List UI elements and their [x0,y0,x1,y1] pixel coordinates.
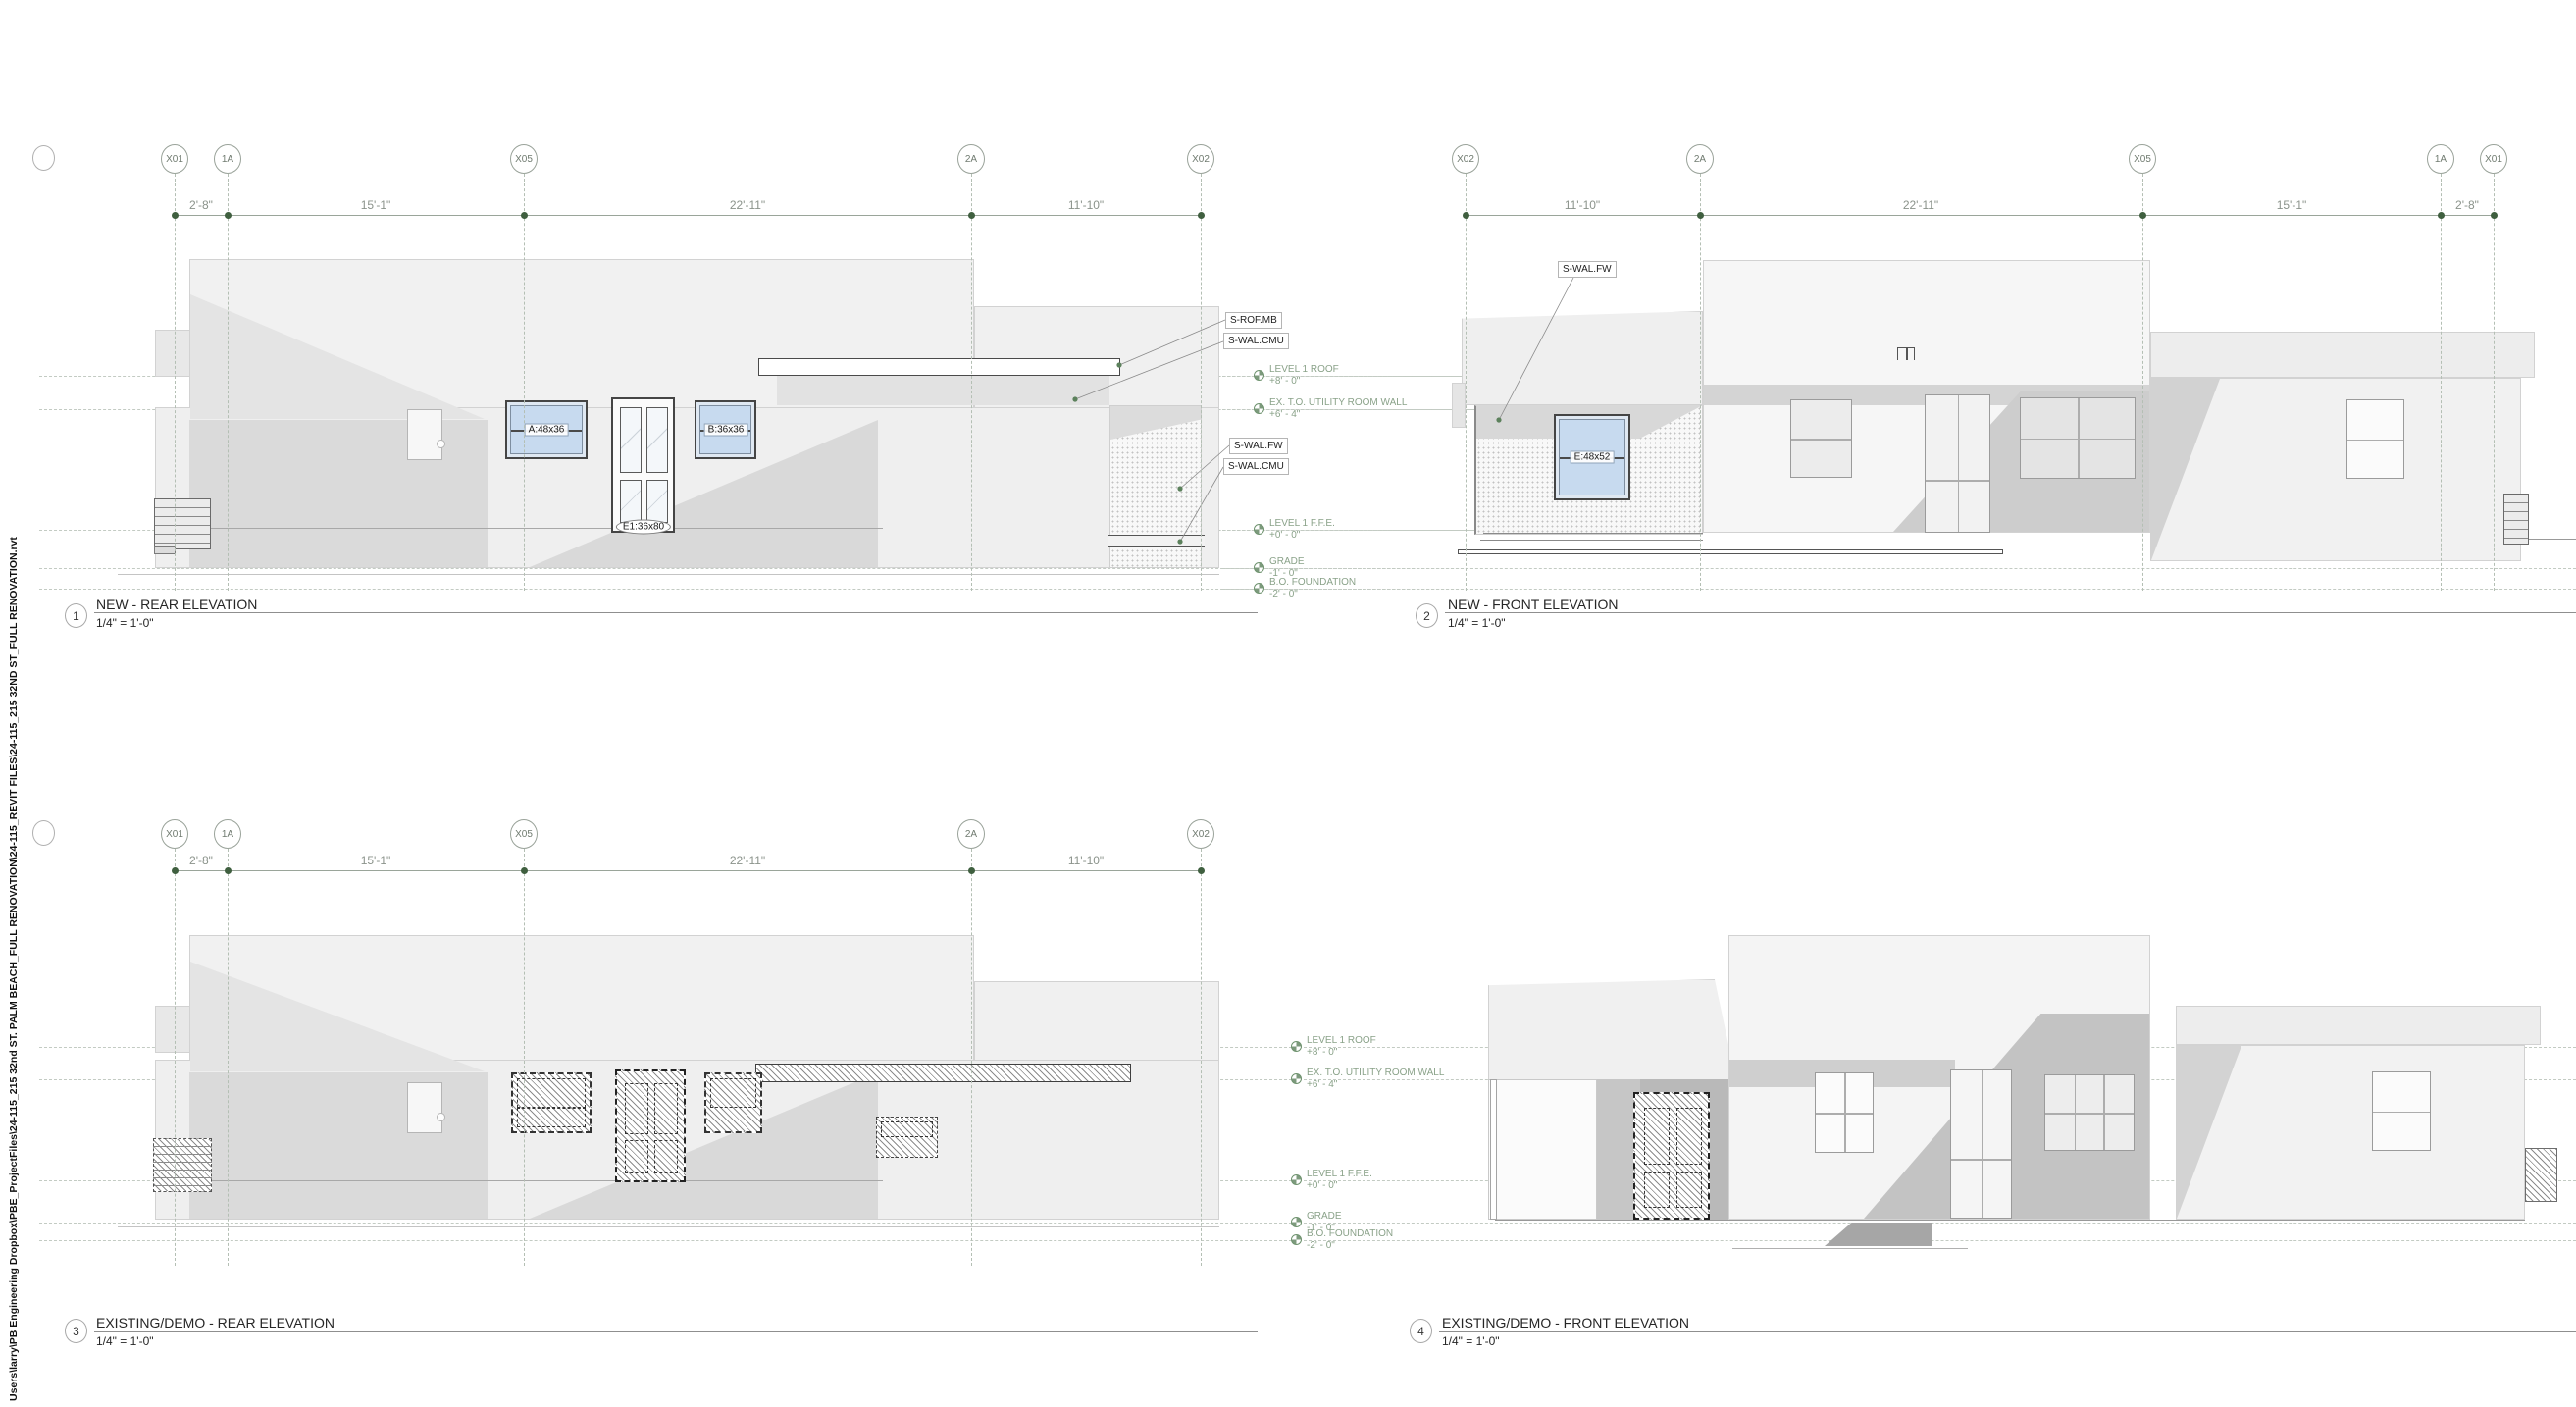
v1-fw-band [1108,535,1205,547]
grid-label: 2A [1694,154,1706,165]
v4-door [1950,1069,2012,1219]
keynote-s-wal-cmu-1: S-WAL.CMU [1223,333,1289,349]
v3-demo-window-3 [876,1117,938,1158]
level-marker [1291,1234,1302,1245]
v4-demo-louver [2525,1148,2557,1202]
v1-grade-line [118,574,1219,575]
view-scale: 1/4" = 1'-0" [96,616,154,630]
grid-bubble: 2A [957,819,985,849]
section-marker [32,820,55,846]
grid-label: X02 [1457,154,1474,165]
grid-label: X01 [166,829,183,840]
dim-text: 15'-1" [361,854,391,867]
file-path-text: Users\larry\PB Engineering Dropbox\PBE_P… [8,537,20,1401]
level-elev: +8' - 0" [1307,1047,1337,1058]
v2-louver [2503,494,2529,545]
dim-dot [521,212,528,219]
door-rail [1951,1159,2011,1161]
v2-step-1 [1483,533,1703,534]
dimension-line [175,870,1201,871]
grid-bubble: 1A [2427,144,2454,174]
dim-dot [968,867,975,874]
dim-text: 15'-1" [2277,198,2307,212]
view-title: NEW - REAR ELEVATION [96,597,257,612]
dim-text: 22'-11" [730,198,765,212]
v2-window-1 [1790,399,1852,478]
dim-dot [2139,212,2146,219]
level-marker [1254,562,1264,573]
level-marker [1291,1041,1302,1052]
elevation-sheet: X01 1A X05 2A X02 2'-8" 15'-1" 22'-11" 1… [0,0,2576,1407]
dim-text: 22'-11" [730,854,765,867]
v1-canopy [758,358,1120,376]
v4-right-roof [2176,1006,2541,1045]
view-scale: 1/4" = 1'-0" [1448,616,1506,630]
section-marker [32,145,55,171]
v4-window-1 [1815,1072,1874,1153]
v3-demo-louver [153,1138,212,1192]
door-pane [620,407,642,473]
v4-walk-line [1495,1220,2525,1221]
grid-line [228,174,229,591]
view-number: 4 [1410,1319,1432,1343]
window-b-tag: B:36x36 [704,424,748,437]
v1-louver-foot [154,546,176,554]
dim-text: 2'-8" [2455,198,2479,212]
level-name: B.O. FOUNDATION [1269,577,1356,588]
dim-text: 2'-8" [189,198,213,212]
level-name: GRADE [1269,556,1305,567]
dimension-line [1466,215,2494,216]
v1-chimney [155,330,190,377]
view-title: NEW - FRONT ELEVATION [1448,597,1618,612]
view-title-underline [94,1331,1258,1332]
dim-dot [2491,212,2498,219]
level-name: LEVEL 1 F.F.E. [1307,1169,1372,1179]
grid-label: X02 [1192,154,1210,165]
grid-bubble: X02 [1452,144,1479,174]
grid-bubble: X02 [1187,144,1214,174]
view-number-text: 2 [1423,609,1430,623]
door-e1-tag: E1:36x80 [616,520,671,535]
grid-bubble: X05 [2129,144,2156,174]
level-marker [1254,524,1264,535]
grid-bubble: 1A [214,144,241,174]
v2-window-3 [2346,399,2404,479]
dim-text: 11'-10" [1068,198,1104,212]
grid-line [971,174,972,591]
dim-text: 22'-11" [1903,198,1938,212]
level-marker [1254,583,1264,594]
demo-door-pane [625,1083,648,1134]
view-title: EXISTING/DEMO - FRONT ELEVATION [1442,1315,1689,1330]
v2-door [1925,394,1990,533]
grid-line [971,849,972,1266]
door-stile [1982,1070,1984,1218]
v1-louver-unit [154,498,211,549]
door-pane [620,480,642,523]
demo-door-pane [625,1140,648,1173]
window-muntin [2021,439,2135,441]
v2-porch-roof [1462,311,1703,405]
level-marker [1254,370,1264,381]
v3-utility-knob [437,1113,445,1121]
window-e-tag: E:48x52 [1571,451,1615,464]
level-elev: +6' - 4" [1269,409,1300,420]
level-name: EX. T.O. UTILITY ROOM WALL [1307,1068,1444,1078]
v3-demo-canopy [755,1064,1131,1082]
demo-sash [517,1108,586,1127]
dim-text: 11'-10" [1565,198,1600,212]
window-muntin [1844,1073,1846,1152]
level-name: B.O. FOUNDATION [1307,1228,1393,1239]
v2-step-3 [1477,547,1703,547]
grid-bubble: X02 [1187,819,1214,849]
door-rail [1926,480,1989,482]
v4-window-2 [2044,1074,2135,1151]
grid-line [1201,174,1202,591]
window-muntin [2373,1112,2430,1114]
dim-dot [521,867,528,874]
view-number-text: 3 [73,1325,79,1338]
v4-demo-door [1633,1092,1710,1220]
v2-edge-line-1 [2529,539,2576,540]
dim-dot [1198,212,1205,219]
v2-walkway [1458,549,2003,554]
v2-step-2 [1480,540,1703,541]
demo-door-pane [654,1083,678,1134]
grid-bubble: X05 [510,144,538,174]
dim-dot [1198,867,1205,874]
grid-bubble: 1A [214,819,241,849]
level-elev: -2' - 0" [1307,1240,1335,1251]
v3-ffe-line [189,1180,883,1181]
grid-line [524,849,525,1266]
v2-porch-notch [1452,383,1466,428]
grid-label: X05 [2134,154,2151,165]
door-pane [646,480,668,523]
dim-dot [172,212,179,219]
grid-label: 1A [222,829,233,840]
keynote-front-s-wal-fw: S-WAL.FW [1558,261,1617,278]
view-title-underline [1445,612,2576,613]
view-title-underline [94,612,1258,613]
demo-door-pane [1644,1108,1670,1165]
demo-door-pane [1644,1172,1670,1208]
keynote-s-wal-fw: S-WAL.FW [1229,438,1288,454]
grid-label: X02 [1192,829,1210,840]
grid-line [2142,174,2143,591]
v3-grade-line [118,1226,1219,1227]
view-number-text: 4 [1417,1325,1424,1338]
grid-line [1466,174,1467,591]
view-title: EXISTING/DEMO - REAR ELEVATION [96,1315,335,1330]
grid-line [1201,849,1202,1266]
grid-line [524,174,525,591]
demo-sash [517,1078,586,1108]
grid-bubble: X01 [161,819,188,849]
v3-demo-window-2 [704,1072,762,1133]
v2-roof-vent [1897,347,1915,360]
door-e1 [611,397,675,533]
v3-wall-shade-left [189,1072,488,1219]
demo-sash [710,1078,756,1108]
grid-line [175,849,176,1266]
level-name: GRADE [1307,1211,1342,1222]
v2-edge-line-2 [2529,547,2576,547]
grid-line [228,849,229,1266]
v3-demo-door [615,1069,686,1182]
v1-ffe-line [189,528,883,529]
demo-door-pane [654,1140,678,1173]
dim-dot [172,867,179,874]
level-name: EX. T.O. UTILITY ROOM WALL [1269,397,1407,408]
grid-bubble: X01 [161,144,188,174]
v4-porch-roof [1488,979,1734,1080]
view-number: 2 [1416,603,1438,628]
grid-bubble: X05 [510,819,538,849]
view-scale: 1/4" = 1'-0" [96,1334,154,1348]
level-marker [1291,1073,1302,1084]
dim-text: 2'-8" [189,854,213,867]
window-muntin [1791,439,1851,441]
level-marker [1254,403,1264,414]
dimension-line [175,215,1201,216]
grid-label: 2A [965,829,977,840]
level-elev: +0' - 0" [1269,530,1300,541]
v4-step-shadow [1825,1223,1932,1246]
v4-window-3 [2372,1071,2431,1151]
v2-right-roof [2150,332,2535,378]
grid-bubble: 2A [1686,144,1714,174]
v1-stucco-band [777,376,1109,405]
v4-porch-opening [1488,1079,1597,1220]
v4-porch-post [1490,1079,1497,1220]
level-elev: +0' - 0" [1307,1180,1337,1191]
dim-dot [1463,212,1469,219]
dim-dot [2438,212,2445,219]
grid-line [2494,174,2495,591]
v1-utility-knob [437,440,445,448]
grid-label: 2A [965,154,977,165]
grid-bubble: 2A [957,144,985,174]
level-name: LEVEL 1 F.F.E. [1269,518,1335,529]
grid-label: X05 [515,829,533,840]
grid-line [1700,174,1701,591]
grid-label: 1A [2435,154,2447,165]
dim-dot [225,867,232,874]
grid-bubble: X01 [2480,144,2507,174]
grid-label: 1A [222,154,233,165]
dim-text: 15'-1" [361,198,391,212]
window-muntin [2347,440,2403,442]
level-name: LEVEL 1 ROOF [1307,1035,1376,1046]
dim-dot [968,212,975,219]
level-marker [1291,1217,1302,1227]
grid-label: X05 [515,154,533,165]
level-elev: +6' - 4" [1307,1079,1337,1090]
grid-label: X01 [2485,154,2502,165]
demo-door-pane [1676,1108,1702,1165]
dim-text: 11'-10" [1068,854,1104,867]
v4-step-line [1732,1248,1968,1249]
window-a-tag: A:48x36 [525,424,569,437]
level-name: LEVEL 1 ROOF [1269,364,1339,375]
view-number-text: 1 [73,609,79,623]
door-stile [1958,395,1960,532]
level-marker [1291,1174,1302,1185]
keynote-s-wal-cmu-2: S-WAL.CMU [1223,458,1289,475]
v3-utility-box [407,1082,442,1133]
demo-door-pane [1676,1172,1702,1208]
window-muntin [2045,1113,2134,1115]
grid-label: X01 [166,154,183,165]
keynote-s-rof-mb: S-ROF.MB [1225,312,1282,329]
view-title-underline [1439,1331,2576,1332]
v1-utility-box [407,409,442,460]
demo-sash [881,1121,933,1137]
grid-line [175,174,176,591]
grid-line [2441,174,2442,591]
level-elev: -2' - 0" [1269,589,1298,599]
view-number: 1 [65,603,87,628]
dim-dot [1697,212,1704,219]
vent-bar [1906,348,1908,360]
v3-chimney [155,1006,190,1053]
view-scale: 1/4" = 1'-0" [1442,1334,1500,1348]
level-elev: +8' - 0" [1269,376,1300,387]
door-pane [646,407,668,473]
dim-dot [225,212,232,219]
v2-window-2 [2020,397,2136,479]
view-number: 3 [65,1319,87,1343]
